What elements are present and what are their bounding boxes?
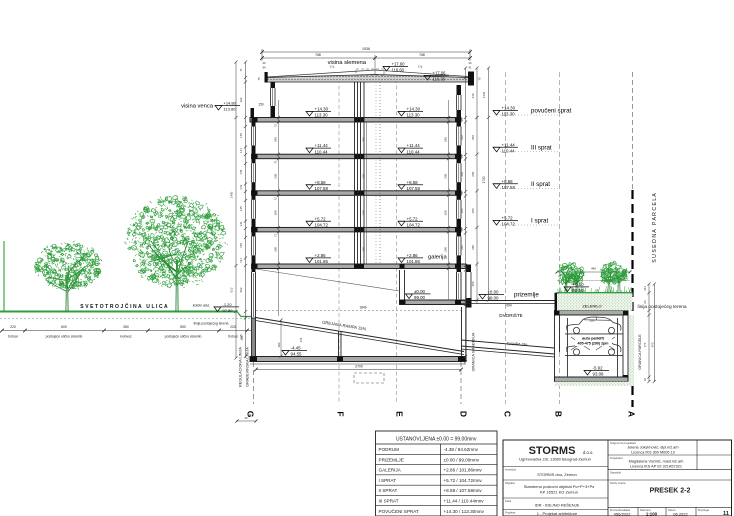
svg-text:11: 11: [723, 511, 729, 516]
svg-text:+2.86: +2.86: [315, 253, 327, 258]
svg-text:+17.06: +17.06: [433, 71, 447, 76]
svg-text:linija postojećeg terena: linija postojećeg terena: [194, 322, 229, 326]
svg-text:768: 768: [315, 53, 321, 57]
svg-text:145: 145: [239, 206, 243, 211]
svg-text:260: 260: [362, 210, 366, 215]
svg-text:101.86: 101.86: [407, 259, 421, 264]
svg-text:141: 141: [239, 258, 243, 263]
svg-text:113.30: 113.30: [315, 113, 329, 118]
svg-text:145: 145: [239, 243, 243, 248]
svg-text:41: 41: [469, 66, 472, 70]
svg-text:1430: 1430: [482, 91, 486, 98]
svg-text:GALERIJA: GALERIJA: [379, 468, 402, 473]
svg-text:300: 300: [277, 342, 281, 347]
svg-text:III SPRAT: III SPRAT: [379, 499, 399, 504]
svg-text:280: 280: [444, 137, 448, 142]
svg-text:262: 262: [460, 208, 464, 213]
svg-text:PODRUM: PODRUM: [379, 447, 400, 452]
svg-text:Saradnik: Saradnik: [610, 471, 622, 475]
svg-text:REGULACIONA LINIJA: REGULACIONA LINIJA: [239, 347, 243, 387]
svg-text:110.44: 110.44: [502, 148, 516, 153]
svg-text:06.2022: 06.2022: [673, 511, 688, 516]
svg-text:+11.44: +11.44: [502, 142, 516, 147]
svg-text:306: 306: [471, 281, 475, 286]
svg-text:40: 40: [469, 61, 472, 65]
svg-text:+11.44: +11.44: [315, 143, 329, 148]
svg-text:+14.30: +14.30: [407, 107, 421, 112]
svg-text:262: 262: [460, 171, 464, 176]
svg-text:286: 286: [471, 208, 475, 213]
svg-text:75: 75: [478, 77, 482, 81]
svg-text:71: 71: [239, 68, 243, 72]
svg-text:+14.30: +14.30: [502, 106, 516, 111]
svg-text:135: 135: [239, 334, 243, 339]
svg-text:postojeće ulično zelenilo: postojeće ulično zelenilo: [165, 335, 202, 339]
svg-text:POVUČENI SPRAT: POVUČENI SPRAT: [379, 508, 419, 514]
svg-text:+11.44: +11.44: [407, 143, 421, 148]
svg-text:+5.72: +5.72: [502, 216, 514, 221]
svg-text:1 - Projekat arhitekture: 1 - Projekat arhitekture: [537, 511, 578, 516]
svg-text:1730: 1730: [482, 176, 486, 183]
svg-text:povučeni sprat: povučeni sprat: [531, 108, 572, 115]
svg-text:102: 102: [239, 97, 243, 102]
svg-text:141: 141: [239, 148, 243, 153]
svg-text:Br.priloga: Br.priloga: [698, 508, 710, 512]
svg-text:26: 26: [643, 300, 647, 304]
svg-text:GRANICA GRAĐENJA: GRANICA GRAĐENJA: [472, 332, 476, 371]
svg-text:340: 340: [471, 93, 475, 98]
svg-text:+8.58: +8.58: [407, 180, 419, 185]
svg-text:+8.58 / 107.58mnv: +8.58 / 107.58mnv: [444, 488, 483, 493]
svg-text:280: 280: [274, 137, 278, 142]
svg-text:I SPRAT: I SPRAT: [379, 478, 397, 483]
svg-text:220: 220: [230, 325, 236, 329]
svg-text:262: 262: [460, 135, 464, 140]
svg-text:286: 286: [471, 171, 475, 176]
svg-text:24: 24: [460, 191, 464, 194]
svg-text:286: 286: [471, 135, 475, 140]
svg-text:110.44: 110.44: [407, 149, 421, 154]
svg-text:116.60: 116.60: [392, 68, 405, 73]
svg-text:260: 260: [362, 247, 366, 252]
svg-text:-1.20: -1.20: [223, 302, 233, 307]
svg-text:72: 72: [274, 233, 278, 237]
svg-text:1:100: 1:100: [646, 511, 658, 516]
svg-text:+14.30: +14.30: [315, 107, 329, 112]
svg-text:I sprat: I sprat: [531, 218, 548, 225]
svg-text:1536: 1536: [362, 47, 370, 51]
svg-text:2700: 2700: [355, 365, 363, 369]
svg-text:145: 145: [239, 169, 243, 174]
svg-text:±0.00: ±0.00: [488, 290, 500, 295]
svg-text:280: 280: [444, 210, 448, 215]
svg-text:+0.50: +0.50: [573, 282, 585, 287]
svg-text:G: G: [246, 411, 256, 418]
svg-text:93.08: 93.08: [593, 372, 605, 377]
svg-text:STORMS: STORMS: [529, 445, 576, 457]
svg-text:141: 141: [239, 184, 243, 189]
svg-text:445: 445: [299, 337, 303, 342]
svg-text:550: 550: [180, 325, 186, 329]
svg-text:116.36: 116.36: [433, 77, 446, 82]
svg-text:94.55: 94.55: [291, 352, 303, 357]
svg-text:Jelena Joksimović, dipl.inž.ar: Jelena Joksimović, dipl.inž.arh: [627, 446, 678, 450]
svg-text:S U S E D N A P A R C E L A: S U S E D N A P A R C E L A: [652, 193, 658, 263]
svg-text:A: A: [627, 411, 637, 417]
svg-text:Faza: Faza: [505, 499, 512, 503]
svg-text:+17.60: +17.60: [392, 62, 406, 67]
svg-text:220: 220: [10, 325, 16, 329]
svg-text:470: 470: [651, 342, 655, 347]
svg-text:768: 768: [419, 53, 425, 57]
svg-text:Licenca IKS AP 02 321A57321: Licenca IKS AP 02 321A57321: [630, 465, 682, 469]
svg-text:40: 40: [263, 61, 266, 65]
svg-text:B: B: [554, 411, 564, 417]
svg-text:Ugrinovačka 23i, 11080 Beograd: Ugrinovačka 23i, 11080 Beograd-Zemun: [519, 457, 591, 462]
svg-text:PRESEK 2-2: PRESEK 2-2: [650, 488, 691, 495]
svg-text:C: C: [503, 411, 513, 417]
svg-text:771: 771: [643, 342, 647, 347]
svg-text:600: 600: [61, 325, 67, 329]
svg-text:24: 24: [460, 228, 464, 231]
svg-text:prizemlje: prizemlje: [514, 292, 539, 299]
svg-text:280: 280: [274, 210, 278, 215]
svg-text:II sprat: II sprat: [531, 181, 550, 188]
svg-text:S V E T O T R O J Č I N A U: S V E T O T R O J Č I N A U L I C A: [80, 303, 168, 310]
svg-text:113.30: 113.30: [502, 112, 516, 117]
svg-text:150: 150: [258, 103, 264, 107]
svg-text:260: 260: [362, 173, 366, 178]
svg-text:72: 72: [274, 197, 278, 201]
svg-text:522: 522: [230, 287, 234, 292]
svg-text:-4.38 / 94.62mnv: -4.38 / 94.62mnv: [444, 447, 479, 452]
svg-text:72: 72: [274, 160, 278, 164]
svg-text:postojeće ulično zelenilo: postojeće ulično zelenilo: [46, 335, 83, 339]
svg-text:d.o.o.: d.o.o.: [583, 450, 593, 455]
svg-text:262: 262: [460, 245, 464, 250]
svg-text:Objekat: Objekat: [505, 481, 515, 485]
svg-text:341: 341: [643, 286, 647, 291]
svg-text:trotoar: trotoar: [8, 335, 19, 339]
svg-text:E: E: [395, 411, 405, 417]
svg-text:107.58: 107.58: [315, 186, 329, 191]
svg-text:75: 75: [257, 77, 261, 81]
svg-text:II SPRAT: II SPRAT: [379, 488, 398, 493]
svg-text:Naziv crteža: Naziv crteža: [610, 481, 626, 485]
svg-text:visina venca: visina venca: [181, 104, 214, 110]
svg-text:104.72: 104.72: [502, 222, 516, 227]
svg-text:USTANOVLJENA ±0.00 = 99.00mnv: USTANOVLJENA ±0.00 = 99.00mnv: [396, 437, 477, 443]
svg-text:IDR - IDEJNO REŠENJE: IDR - IDEJNO REŠENJE: [535, 503, 580, 508]
svg-text:Investitor: Investitor: [505, 468, 516, 472]
svg-text:KP 16521 KO Zemun: KP 16521 KO Zemun: [540, 490, 578, 495]
svg-text:260: 260: [362, 137, 366, 142]
svg-text:771: 771: [417, 65, 423, 69]
svg-text:±0.00 / 99.00mnv: ±0.00 / 99.00mnv: [444, 457, 480, 462]
svg-text:350: 350: [123, 325, 129, 329]
svg-text:101.86: 101.86: [315, 259, 329, 264]
svg-text:440: 440: [591, 267, 596, 271]
svg-text:linija postojećeg terena: linija postojećeg terena: [638, 304, 687, 310]
svg-text:+2.86 / 101.86mnv: +2.86 / 101.86mnv: [444, 468, 483, 473]
svg-text:ZELENILO: ZELENILO: [582, 304, 601, 309]
svg-text:±0.00: ±0.00: [414, 289, 426, 294]
svg-text:113.30: 113.30: [407, 113, 421, 118]
svg-text:STORMS doo, Zemun: STORMS doo, Zemun: [537, 472, 577, 477]
svg-text:94: 94: [263, 66, 266, 70]
svg-text:+11.44 / 110.44mnv: +11.44 / 110.44mnv: [444, 499, 485, 504]
svg-text:DVORIŠTE: DVORIŠTE: [499, 312, 522, 318]
svg-text:Magdalena Vučinić, mast.inž.ar: Magdalena Vučinić, mast.inž.arh: [629, 460, 684, 464]
svg-text:D: D: [459, 411, 469, 417]
svg-text:405-475 (290) 2pm: 405-475 (290) 2pm: [578, 342, 609, 346]
svg-text:+14.80: +14.80: [224, 101, 237, 106]
svg-text:Odgovorni projektant: Odgovorni projektant: [610, 441, 636, 445]
svg-text:galerija: galerija: [428, 255, 447, 261]
svg-text:104.72: 104.72: [315, 223, 329, 228]
svg-text:500: 500: [590, 319, 595, 323]
svg-text:280: 280: [274, 173, 278, 178]
svg-text:24: 24: [460, 154, 464, 157]
svg-text:99.00: 99.00: [414, 295, 426, 300]
svg-text:trotoar: trotoar: [228, 335, 239, 339]
svg-text:104.72: 104.72: [407, 223, 421, 228]
svg-text:auto parklift: auto parklift: [582, 337, 604, 341]
svg-text:72: 72: [274, 124, 278, 128]
svg-text:1849: 1849: [359, 306, 366, 310]
svg-text:145: 145: [239, 133, 243, 138]
svg-text:III sprat: III sprat: [531, 144, 552, 151]
svg-text:-5.92: -5.92: [593, 366, 604, 371]
svg-text:kolski ulaz: kolski ulaz: [193, 304, 210, 308]
svg-text:Projekat: Projekat: [505, 511, 515, 515]
svg-text:Stambeno poslovni objekat Po+: Stambeno poslovni objekat Po+P+3+Ps: [524, 484, 595, 489]
svg-text:+8.58: +8.58: [502, 179, 514, 184]
svg-text:1400: 1400: [230, 191, 234, 198]
svg-text:+2.86: +2.86: [407, 253, 419, 258]
svg-text:+5.72: +5.72: [407, 216, 419, 221]
svg-text:107.58: 107.58: [502, 185, 516, 190]
svg-text:GRAĐEVINSKA LINIJA: GRAĐEVINSKA LINIJA: [246, 347, 250, 387]
svg-text:+5.72: +5.72: [315, 216, 327, 221]
svg-text:99.00: 99.00: [488, 296, 500, 301]
svg-text:Projektant: Projektant: [610, 456, 623, 460]
svg-text:visina slemena: visina slemena: [328, 60, 367, 66]
svg-text:280: 280: [444, 247, 448, 252]
svg-text:113.80: 113.80: [224, 107, 237, 112]
svg-text:+5.72 / 104.72mnv: +5.72 / 104.72mnv: [444, 478, 483, 483]
svg-text:PRIZEMLJE: PRIZEMLJE: [379, 457, 404, 462]
svg-text:602: 602: [239, 287, 243, 292]
svg-text:kolovoz: kolovoz: [120, 335, 132, 339]
svg-text:280: 280: [444, 173, 448, 178]
svg-text:-4.45: -4.45: [291, 346, 302, 351]
svg-text:99.50: 99.50: [573, 288, 585, 293]
svg-text:110.44: 110.44: [315, 149, 329, 154]
svg-text:F: F: [336, 411, 346, 416]
svg-text:+14.30 / 113.30mnv: +14.30 / 113.30mnv: [444, 509, 485, 514]
svg-text:Licenca IKS 300 M006 13: Licenca IKS 300 M006 13: [631, 450, 674, 454]
svg-text:97.80: 97.80: [223, 308, 234, 313]
svg-text:280: 280: [274, 247, 278, 252]
svg-text:694: 694: [506, 304, 512, 308]
svg-text:24: 24: [460, 118, 464, 121]
svg-text:46: 46: [643, 378, 647, 382]
svg-text:107.58: 107.58: [407, 186, 421, 191]
svg-text:456/2022: 456/2022: [614, 511, 631, 516]
svg-text:141: 141: [239, 221, 243, 226]
svg-text:GRANICA PARCELE: GRANICA PARCELE: [638, 334, 642, 370]
svg-text:286: 286: [471, 245, 475, 250]
svg-text:+8.58: +8.58: [315, 180, 327, 185]
